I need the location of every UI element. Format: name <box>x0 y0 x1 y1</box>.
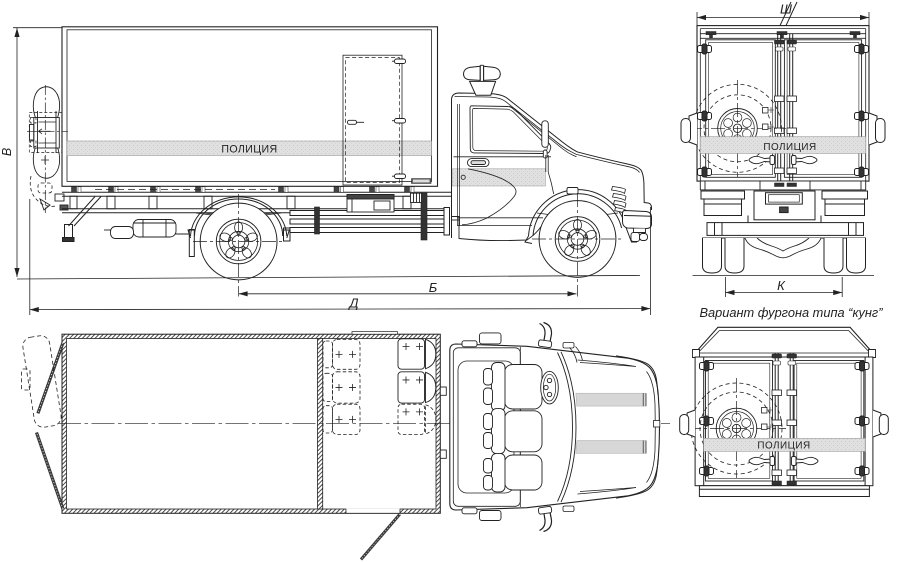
svg-text:Вариант фургона типа “кунг”: Вариант фургона типа “кунг” <box>700 305 884 320</box>
svg-text:Б: Б <box>429 280 438 295</box>
svg-text:Д: Д <box>347 296 358 311</box>
svg-text:ПОЛИЦИЯ: ПОЛИЦИЯ <box>757 441 810 452</box>
svg-text:ПОЛИЦИЯ: ПОЛИЦИЯ <box>221 143 277 155</box>
svg-text:ПОЛИЦИЯ: ПОЛИЦИЯ <box>763 142 816 153</box>
svg-text:В: В <box>0 148 14 156</box>
svg-text:К: К <box>777 278 786 293</box>
